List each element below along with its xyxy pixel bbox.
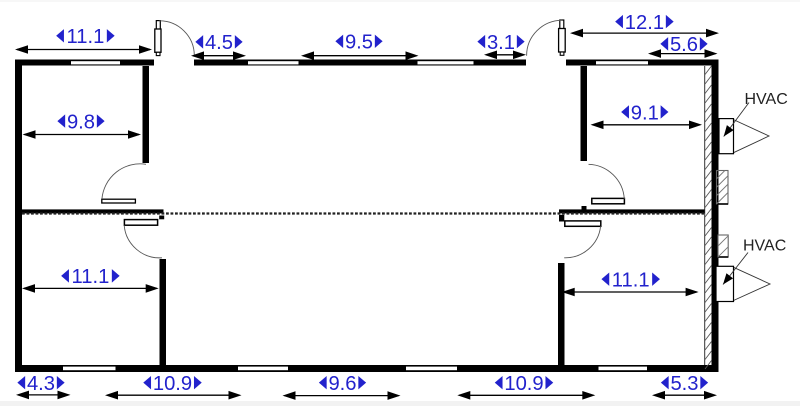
svg-text:5.3: 5.3 (670, 373, 698, 395)
svg-text:3.1: 3.1 (487, 32, 515, 54)
svg-text:9.8: 9.8 (67, 111, 95, 133)
svg-text:11.1: 11.1 (612, 270, 650, 292)
svg-text:9.1: 9.1 (631, 102, 659, 124)
svg-text:HVAC: HVAC (743, 237, 786, 254)
svg-text:10.9: 10.9 (504, 373, 543, 395)
svg-text:4.5: 4.5 (205, 32, 233, 54)
svg-text:9.6: 9.6 (328, 373, 356, 395)
svg-text:10.9: 10.9 (153, 373, 192, 395)
svg-text:11.1: 11.1 (67, 26, 105, 48)
svg-text:11.1: 11.1 (72, 266, 110, 288)
svg-text:9.5: 9.5 (345, 32, 373, 54)
svg-text:5.6: 5.6 (670, 34, 698, 56)
svg-text:HVAC: HVAC (745, 91, 788, 108)
svg-text:12.1: 12.1 (625, 12, 664, 34)
svg-text:4.3: 4.3 (27, 373, 55, 395)
